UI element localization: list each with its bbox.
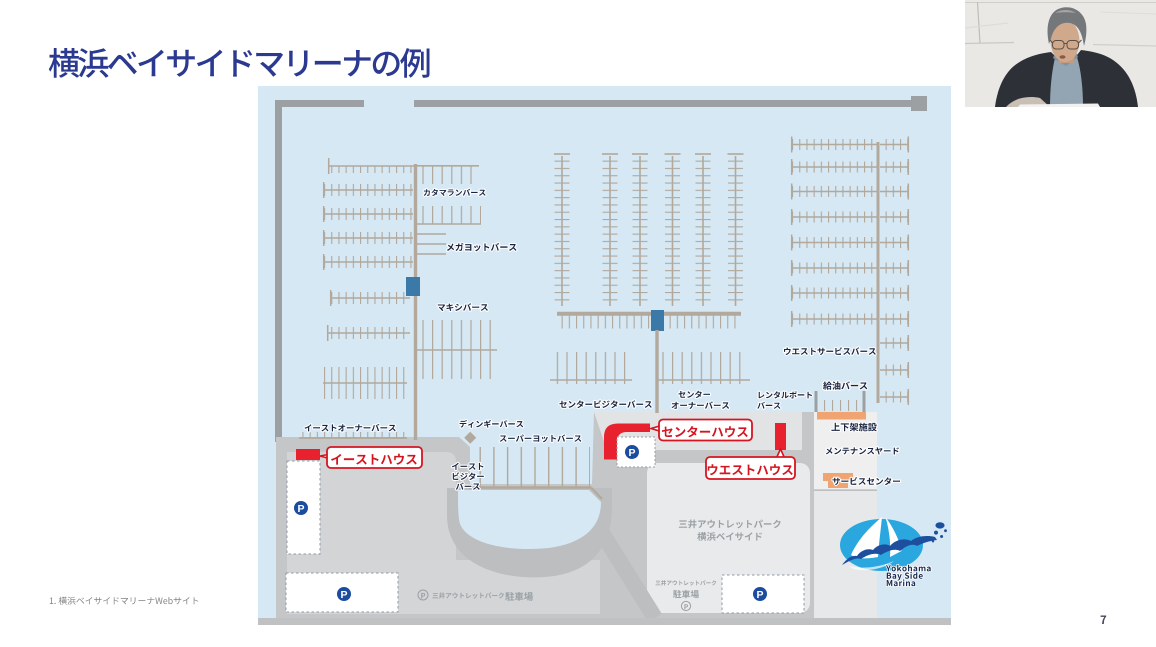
svg-text:P: P	[297, 503, 304, 515]
svg-text:P: P	[340, 589, 347, 601]
svg-text:P: P	[628, 447, 635, 459]
svg-text:P: P	[756, 589, 763, 601]
